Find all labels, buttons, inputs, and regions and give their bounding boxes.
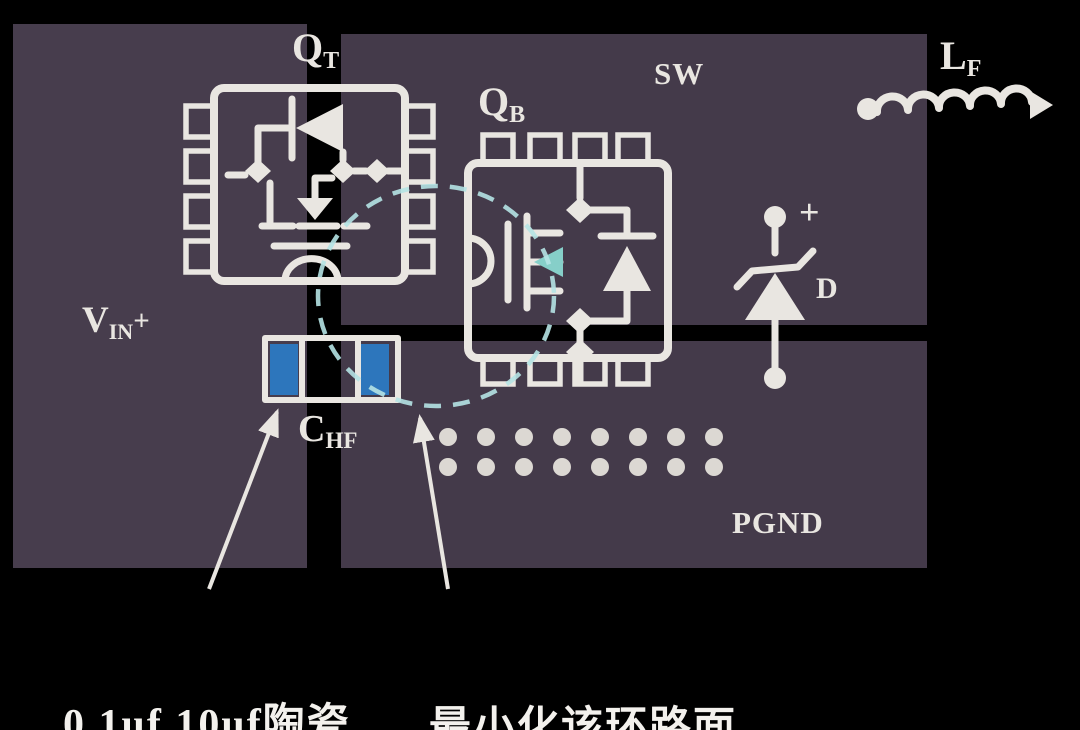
label-sw: SW [654, 58, 704, 89]
via-dot [553, 458, 571, 476]
via-dot [515, 428, 533, 446]
copper-region-vin [13, 24, 307, 568]
copper-region-pgnd [341, 341, 927, 568]
coil-arrowhead [1030, 91, 1053, 119]
loop-note: 最小化该环路面 积 [429, 596, 737, 730]
via-dot [477, 458, 495, 476]
via-dot [439, 428, 457, 446]
capacitor-pad-right [361, 344, 389, 395]
label-diode: D [816, 274, 838, 304]
label-pgnd: PGND [732, 507, 824, 538]
label-diode-plus: + [799, 194, 820, 230]
via-dot [439, 458, 457, 476]
via-dot [591, 458, 609, 476]
via-dot [667, 458, 685, 476]
via-dot [629, 458, 647, 476]
via-dot [515, 458, 533, 476]
via-dot [705, 458, 723, 476]
capacitor-note: 0.1uf 10uf陶瓷 电容 [63, 593, 351, 730]
via-dot [553, 428, 571, 446]
pcb-layout-diagram: QT QB SW LF VIN+ CHF + D PGND 0.1uf 10uf… [0, 0, 1080, 730]
label-chf: CHF [298, 410, 357, 452]
via-dot [629, 428, 647, 446]
capacitor-pad-left [270, 344, 298, 395]
via-dot [705, 428, 723, 446]
label-qt: QT [292, 28, 339, 73]
label-vin: VIN+ [82, 302, 150, 343]
via-dot [477, 428, 495, 446]
via-dot [667, 428, 685, 446]
label-qb: QB [478, 82, 525, 127]
via-dot [591, 428, 609, 446]
label-lf: LF [940, 36, 981, 81]
